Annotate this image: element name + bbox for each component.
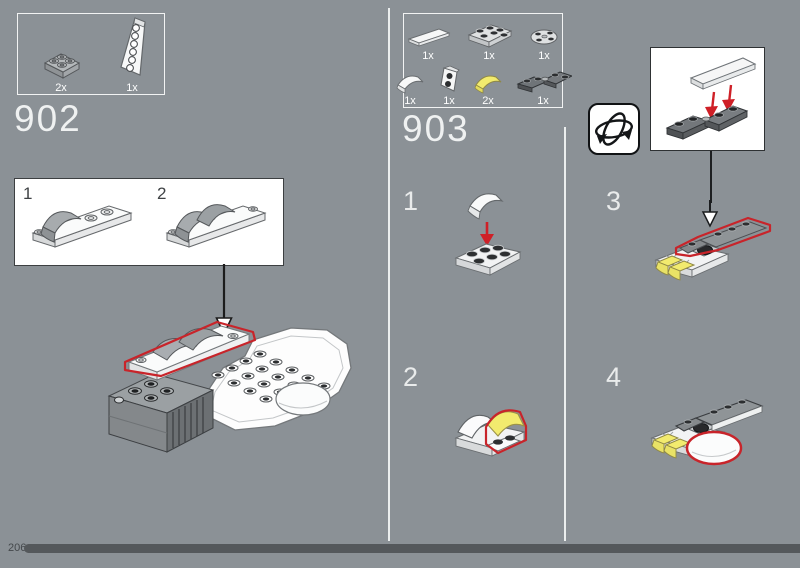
instruction-page: 2x 1x 902 1 [0, 0, 800, 568]
slope-curved-yellow-icon [472, 68, 504, 94]
part-count: 1x [443, 96, 455, 107]
detail-connector-line [710, 151, 712, 203]
subassembly-step2-icon [153, 185, 281, 265]
plates-angled-dark-gray-icon [514, 66, 572, 94]
substep-4-icon [626, 378, 784, 478]
part-wedge-plate-white: 1x [115, 15, 149, 94]
callout-step-1: 1 [15, 179, 149, 265]
part-plate-round-2x2-gray: 1x [527, 23, 561, 62]
progress-bar [24, 544, 800, 553]
callout-box-902: 1 2 [14, 178, 284, 266]
substep-2-icon [428, 392, 544, 472]
parts-box-902: 2x 1x [17, 13, 165, 95]
substep-2-label: 2 [403, 364, 418, 391]
part-count: 1x [538, 51, 550, 62]
part-count: 2x [55, 83, 67, 94]
part-tile-1x4-white: 1x [405, 25, 451, 62]
part-count: 1x [126, 83, 138, 94]
part-plates-angled-dark-gray: 1x [514, 66, 572, 107]
bracket-white-icon [436, 64, 462, 94]
wedge-plate-white-icon [115, 15, 149, 81]
part-count: 1x [537, 96, 549, 107]
substep-3-icon [630, 200, 788, 288]
plate-2x3-gray-icon [463, 15, 515, 49]
part-slope-curved-yellow: 2x [472, 68, 504, 107]
plate-2x2-gray-icon [33, 39, 89, 81]
part-count: 1x [483, 51, 495, 62]
section-divider-left [388, 8, 390, 541]
substep-3-label: 3 [606, 188, 621, 215]
detail-box-903 [650, 47, 765, 151]
slope-curved-white-icon [394, 68, 426, 94]
step-number-903: 903 [402, 110, 470, 147]
callout-step-2: 2 [149, 179, 283, 265]
part-slope-curved-white: 1x [394, 68, 426, 107]
part-count: 1x [404, 96, 416, 107]
substep-4-label: 4 [606, 364, 621, 391]
subassembly-step1-icon [19, 185, 147, 265]
substep-1-icon [428, 184, 534, 276]
section-divider-right [564, 127, 566, 541]
detail-box-icon [651, 48, 763, 149]
tile-1x4-white-icon [405, 25, 451, 49]
rotate-glyph [591, 106, 637, 152]
assembly-902-icon [95, 296, 361, 488]
rotate-model-3d-icon [588, 103, 640, 155]
plate-round-2x2-gray-icon [527, 23, 561, 49]
part-plate-2x2-gray: 2x [33, 39, 89, 94]
substep-1-label: 1 [403, 188, 418, 215]
part-count: 1x [422, 51, 434, 62]
part-bracket-white: 1x [436, 64, 462, 107]
parts-box-903: 1x 1x [403, 13, 563, 108]
step-number-902: 902 [14, 100, 82, 137]
part-count: 2x [482, 96, 494, 107]
part-plate-2x3-gray: 1x [463, 15, 515, 62]
